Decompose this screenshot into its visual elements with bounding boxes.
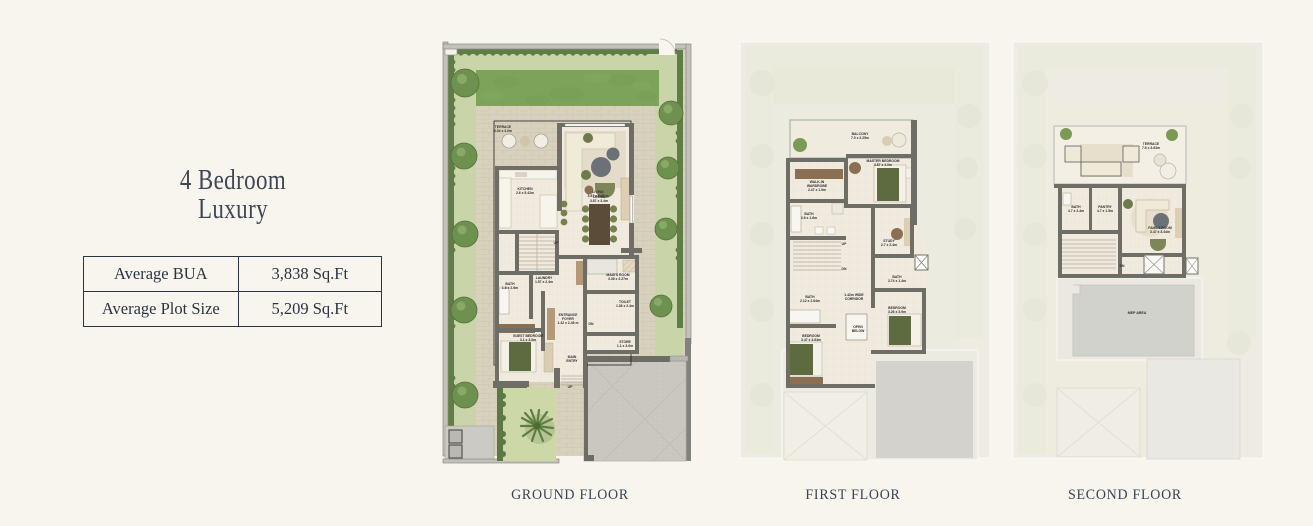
- svg-text:3.1 x 3.0m: 3.1 x 3.0m: [520, 338, 536, 342]
- svg-text:2.74 x 1.4m: 2.74 x 1.4m: [888, 279, 906, 283]
- svg-text:1.6 x 2.6m: 1.6 x 2.6m: [502, 286, 518, 290]
- svg-text:2.7 x 2.4m: 2.7 x 2.4m: [881, 243, 897, 247]
- svg-text:1.1 x 3.0m: 1.1 x 3.0m: [617, 344, 633, 348]
- svg-text:3.87 x 3.4m: 3.87 x 3.4m: [590, 199, 608, 203]
- svg-text:7.0 x 2.25m: 7.0 x 2.25m: [851, 136, 869, 140]
- svg-text:4.7 x 2.4m: 4.7 x 2.4m: [1068, 209, 1084, 213]
- svg-text:UP: UP: [568, 385, 573, 389]
- svg-text:2.47 x 1.9m: 2.47 x 1.9m: [808, 188, 826, 192]
- svg-text:MEP AREA: MEP AREA: [1128, 311, 1147, 315]
- svg-text:CORRIDOR: CORRIDOR: [845, 297, 864, 301]
- svg-text:DN: DN: [1120, 264, 1125, 268]
- svg-text:2.12 x 2.64m: 2.12 x 2.64m: [800, 299, 820, 303]
- svg-text:1.42 x 2.46 m: 1.42 x 2.46 m: [558, 321, 579, 325]
- svg-text:7.6 x 3.63m: 7.6 x 3.63m: [1142, 146, 1160, 150]
- svg-text:ENTRY: ENTRY: [566, 359, 578, 363]
- svg-text:UP: UP: [554, 241, 559, 245]
- svg-text:1.36 x 2.4m: 1.36 x 2.4m: [616, 304, 634, 308]
- svg-text:2.6 x 5.42m: 2.6 x 5.42m: [516, 191, 534, 195]
- svg-text:3.47 x 3.64m: 3.47 x 3.64m: [801, 338, 821, 342]
- svg-text:DN: DN: [842, 267, 847, 271]
- svg-text:DN: DN: [589, 322, 594, 326]
- svg-text:3.26 x 3.9m: 3.26 x 3.9m: [888, 310, 906, 314]
- svg-text:UP: UP: [842, 242, 847, 246]
- svg-text:3.87 x 4.0m: 3.87 x 4.0m: [874, 163, 892, 167]
- svg-text:3.47 x 3.44m: 3.47 x 3.44m: [1150, 230, 1170, 234]
- svg-text:BELOW: BELOW: [852, 329, 865, 333]
- svg-text:6.04 x 3.0m: 6.04 x 3.0m: [494, 129, 512, 133]
- svg-text:3.36 x 2.27m: 3.36 x 2.27m: [608, 277, 628, 281]
- svg-text:4.7 x 1.5m: 4.7 x 1.5m: [1097, 209, 1113, 213]
- svg-text:3.6 x 1.6m: 3.6 x 1.6m: [801, 216, 817, 220]
- svg-text:1.57 x 2.4m: 1.57 x 2.4m: [535, 280, 553, 284]
